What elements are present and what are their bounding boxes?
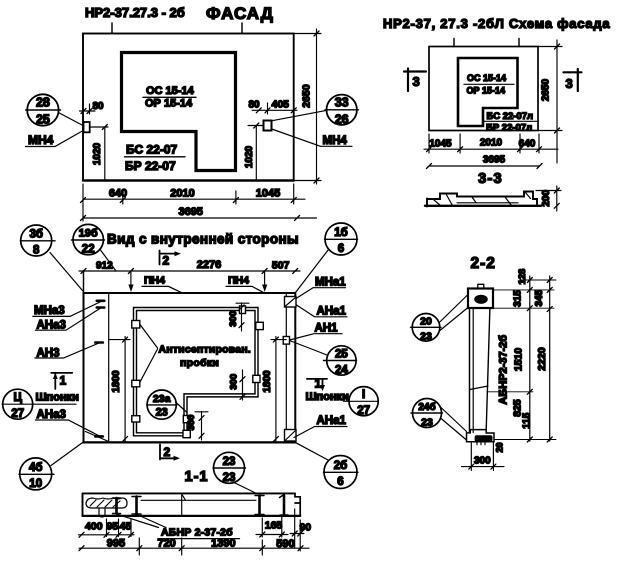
svg-text:Вид с внутренней стороны: Вид с внутренней стороны <box>107 232 299 247</box>
svg-text:300: 300 <box>186 415 197 431</box>
svg-text:МНа1: МНа1 <box>315 277 346 289</box>
svg-text:10: 10 <box>29 478 42 490</box>
svg-text:23: 23 <box>421 416 433 428</box>
svg-text:3б: 3б <box>29 228 43 240</box>
svg-text:пробки: пробки <box>180 357 219 369</box>
svg-text:19б: 19б <box>79 228 98 240</box>
svg-text:300: 300 <box>228 311 239 327</box>
svg-text:23: 23 <box>156 407 168 419</box>
svg-text:20: 20 <box>420 315 432 327</box>
svg-text:1800: 1800 <box>111 370 122 393</box>
svg-text:ФАСАД: ФАСАД <box>206 4 274 23</box>
svg-text:26: 26 <box>335 113 349 127</box>
svg-text:1020: 1020 <box>244 145 255 168</box>
svg-text:I: I <box>362 389 365 401</box>
svg-text:1045: 1045 <box>256 188 280 200</box>
svg-text:3695: 3695 <box>178 206 202 218</box>
svg-text:2б: 2б <box>334 460 348 472</box>
svg-text:590: 590 <box>276 538 294 550</box>
svg-text:128: 128 <box>517 269 528 285</box>
svg-text:БС 22-07: БС 22-07 <box>126 143 177 157</box>
svg-text:ПН4: ПН4 <box>144 275 165 287</box>
svg-text:20: 20 <box>495 442 505 452</box>
svg-text:23: 23 <box>420 330 432 342</box>
svg-text:23: 23 <box>223 456 236 468</box>
svg-text:345: 345 <box>534 289 545 306</box>
svg-text:315: 315 <box>513 290 524 307</box>
svg-text:2010: 2010 <box>170 188 194 200</box>
svg-text:1510: 1510 <box>513 348 525 372</box>
svg-text:АНа3: АНа3 <box>37 409 66 421</box>
svg-text:22: 22 <box>82 244 95 256</box>
svg-text:4б: 4б <box>29 462 43 474</box>
svg-text:1045: 1045 <box>429 138 452 149</box>
svg-text:ОР 15-14: ОР 15-14 <box>145 98 193 110</box>
svg-text:200: 200 <box>541 190 552 207</box>
svg-text:ОС 15-14: ОС 15-14 <box>467 73 506 83</box>
svg-text:1: 1 <box>315 377 322 391</box>
svg-text:25: 25 <box>36 113 50 127</box>
svg-text:27: 27 <box>11 408 24 420</box>
svg-text:АНа1: АНа1 <box>317 306 347 318</box>
svg-text:640: 640 <box>109 188 127 200</box>
svg-text:2-2: 2-2 <box>471 255 496 272</box>
svg-text:НР2-37.27.3 - 2б: НР2-37.27.3 - 2б <box>85 5 185 20</box>
svg-text:МНа3: МНа3 <box>34 305 65 317</box>
svg-text:80: 80 <box>249 100 261 111</box>
svg-text:405: 405 <box>272 99 290 111</box>
svg-text:300: 300 <box>474 456 491 467</box>
svg-text:БС 22-07л: БС 22-07л <box>487 111 534 122</box>
svg-text:995: 995 <box>107 538 125 550</box>
svg-text:ОС 15-14: ОС 15-14 <box>146 85 195 97</box>
svg-text:МН4: МН4 <box>28 133 54 147</box>
svg-text:Шпонки: Шпонки <box>36 392 79 404</box>
svg-text:НР2-37, 27.3 -2бЛ Схема фасада: НР2-37, 27.3 -2бЛ Схема фасада <box>383 16 610 31</box>
svg-text:3: 3 <box>413 74 420 89</box>
svg-text:2650: 2650 <box>541 78 552 101</box>
svg-text:3: 3 <box>566 76 573 91</box>
svg-text:АНа1: АНа1 <box>317 415 347 427</box>
svg-text:Шпонки: Шпонки <box>306 391 349 403</box>
svg-text:25: 25 <box>335 348 348 360</box>
svg-text:1: 1 <box>60 374 67 388</box>
svg-text:2220: 2220 <box>536 347 548 371</box>
svg-text:640: 640 <box>519 138 536 149</box>
svg-text:1020: 1020 <box>92 142 103 165</box>
svg-text:6: 6 <box>337 476 343 488</box>
svg-text:1390: 1390 <box>211 538 235 550</box>
svg-text:2650: 2650 <box>301 84 313 108</box>
svg-text:Антисептирован.: Антисептирован. <box>159 344 251 356</box>
svg-text:115: 115 <box>522 412 533 429</box>
svg-text:23: 23 <box>223 472 236 484</box>
svg-text:1800: 1800 <box>262 370 273 393</box>
svg-text:АБНР2-37-2б: АБНР2-37-2б <box>498 335 510 405</box>
svg-text:27: 27 <box>357 405 370 417</box>
svg-text:ОР 15-14: ОР 15-14 <box>467 86 506 96</box>
svg-text:165: 165 <box>265 520 283 532</box>
svg-text:2010: 2010 <box>480 137 503 148</box>
svg-text:2: 2 <box>163 254 170 268</box>
svg-text:6: 6 <box>338 243 344 255</box>
svg-text:24б: 24б <box>418 401 435 413</box>
svg-text:БР 22-07: БР 22-07 <box>125 159 176 173</box>
svg-text:400: 400 <box>85 521 103 533</box>
svg-text:912: 912 <box>96 261 113 272</box>
svg-text:95: 95 <box>106 521 118 533</box>
svg-text:МН4: МН4 <box>323 135 348 147</box>
svg-text:28: 28 <box>36 96 50 110</box>
svg-text:300: 300 <box>229 374 240 390</box>
svg-text:2276: 2276 <box>197 259 221 271</box>
svg-text:33: 33 <box>335 96 349 110</box>
svg-text:3-3: 3-3 <box>478 170 503 187</box>
svg-text:1-1: 1-1 <box>185 469 209 485</box>
svg-text:45: 45 <box>120 521 132 533</box>
svg-text:Ц: Ц <box>13 392 22 404</box>
svg-text:3695: 3695 <box>483 155 506 166</box>
svg-text:БР 22-07л: БР 22-07л <box>486 123 532 134</box>
svg-text:720: 720 <box>157 538 175 550</box>
svg-text:АН1: АН1 <box>315 323 339 335</box>
svg-text:ПН4: ПН4 <box>228 275 249 287</box>
svg-text:24: 24 <box>335 364 348 376</box>
svg-text:2: 2 <box>164 445 171 459</box>
svg-text:23а: 23а <box>153 393 171 405</box>
svg-text:8: 8 <box>33 245 40 257</box>
svg-text:507: 507 <box>272 260 290 272</box>
svg-text:80: 80 <box>93 101 105 112</box>
svg-text:1б: 1б <box>334 227 348 239</box>
